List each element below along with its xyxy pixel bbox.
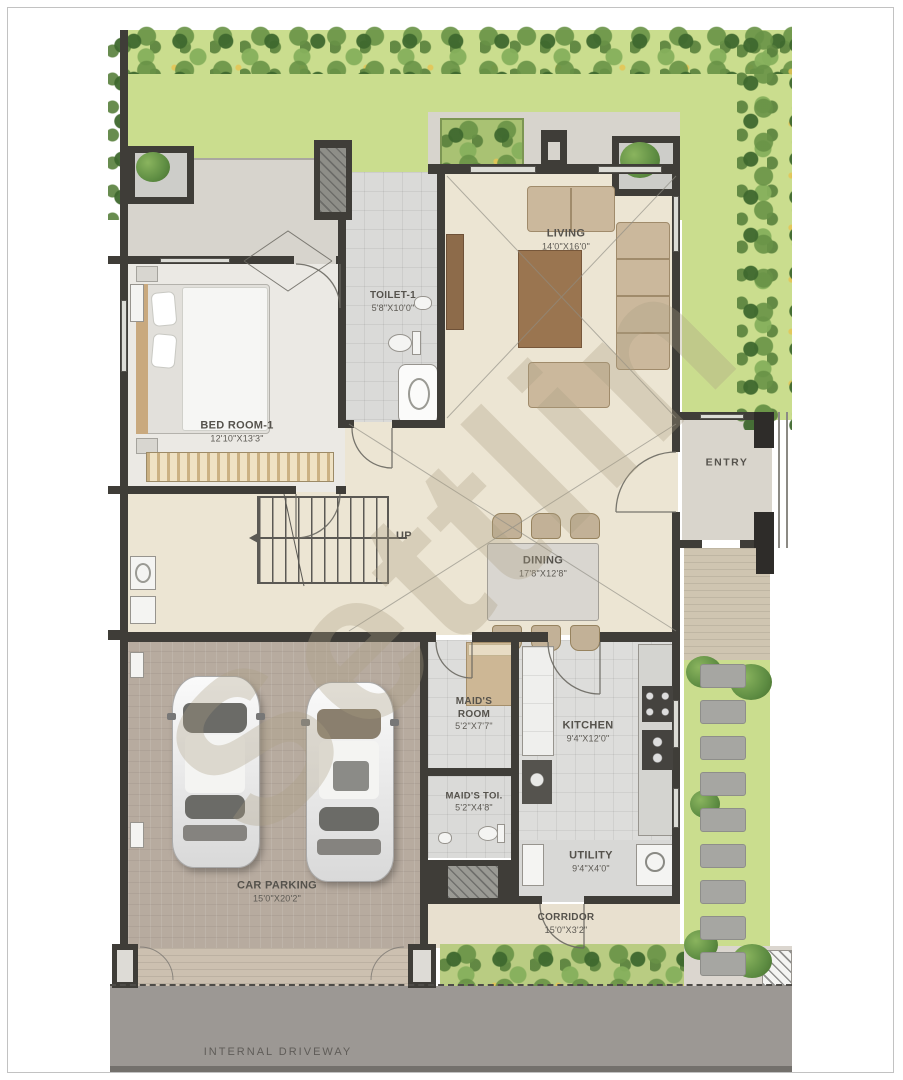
room-name: DINING bbox=[523, 555, 563, 567]
label-up: UP bbox=[396, 530, 412, 544]
label-dining: DINING 17'8"X12'8" bbox=[519, 555, 567, 580]
gate-swing-arcs bbox=[140, 947, 404, 980]
room-dims: 15'0"X20'2" bbox=[237, 893, 317, 904]
room-name: MAID'S ROOM bbox=[456, 696, 492, 720]
label-driveway: INTERNAL DRIVEWAY bbox=[204, 1046, 353, 1060]
room-name: CAR PARKING bbox=[237, 880, 317, 892]
room-dims: 9'4"X4'0" bbox=[569, 863, 613, 874]
room-name: UTILITY bbox=[569, 850, 613, 862]
label-car-parking: CAR PARKING 15'0"X20'2" bbox=[237, 880, 317, 905]
room-name: KITCHEN bbox=[563, 720, 614, 732]
stair-break-line bbox=[284, 494, 304, 586]
door-swings bbox=[296, 264, 676, 948]
room-dims: 12'10"X13'3" bbox=[200, 433, 273, 444]
label-corridor: CORRIDOR 15'0"X3'2" bbox=[538, 912, 595, 936]
label-living: LIVING 14'0"X16'0" bbox=[542, 228, 590, 253]
room-name: MAID'S TOI. bbox=[445, 790, 502, 801]
stair-up-text: UP bbox=[396, 530, 412, 542]
label-toilet1: TOILET-1 5'8"X10'0" bbox=[370, 290, 416, 314]
room-dims: 9'4"X12'0" bbox=[563, 733, 614, 744]
room-name: CORRIDOR bbox=[538, 912, 595, 923]
label-maids-toi: MAID'S TOI. 5'2"X4'8" bbox=[445, 790, 502, 813]
label-utility: UTILITY 9'4"X4'0" bbox=[569, 850, 613, 875]
room-dims: 15'0"X3'2" bbox=[538, 925, 595, 936]
plan-annotations bbox=[0, 0, 903, 1080]
room-dims: 14'0"X16'0" bbox=[542, 241, 590, 252]
room-name: ENTRY bbox=[706, 456, 749, 468]
room-dims: 17'8"X12'8" bbox=[519, 568, 567, 579]
room-dims: 5'8"X10'0" bbox=[370, 303, 416, 314]
cross-lines bbox=[349, 176, 676, 631]
floor-plan: LIVING 14'0"X16'0" TOILET-1 5'8"X10'0" B… bbox=[0, 0, 903, 1080]
label-maids-room: MAID'S ROOM 5'2"X7'7" bbox=[443, 696, 505, 732]
room-dims: 5'2"X7'7" bbox=[443, 721, 505, 732]
french-door-mark bbox=[244, 231, 332, 291]
label-entry: ENTRY bbox=[706, 456, 749, 469]
driveway-text: INTERNAL DRIVEWAY bbox=[204, 1046, 353, 1058]
room-name: BED ROOM-1 bbox=[200, 420, 273, 432]
room-dims: 5'2"X4'8" bbox=[445, 802, 502, 813]
room-name: TOILET-1 bbox=[370, 290, 416, 301]
label-kitchen: KITCHEN 9'4"X12'0" bbox=[563, 720, 614, 745]
room-name: LIVING bbox=[547, 228, 585, 240]
label-bedroom1: BED ROOM-1 12'10"X13'3" bbox=[200, 420, 273, 445]
